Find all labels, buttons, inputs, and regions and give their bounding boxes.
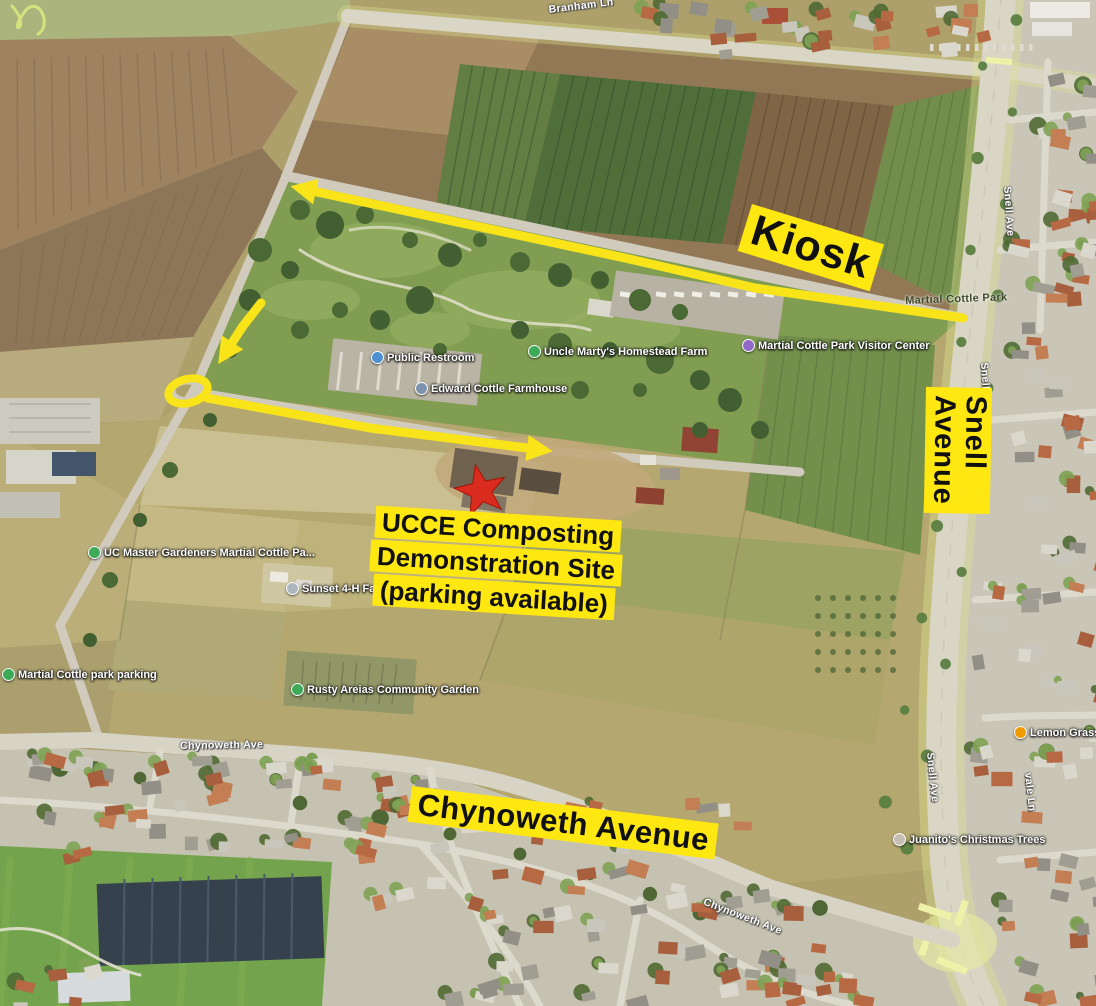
snell-avenue-text: Snell Avenue [924,387,992,514]
map-flyer: Martial Cottle ParkBranham LnSnell AveSn… [0,0,1096,1006]
flyer-labels-layer: Kiosk UCCE Composting Demonstration Site… [0,0,1096,1006]
chynoweth-avenue-label: Chynoweth Avenue [408,786,719,860]
kiosk-label: Kiosk [738,204,885,292]
snell-avenue-label: Snell Avenue [924,387,992,514]
composting-site-label: UCCE Composting Demonstration Site (park… [353,504,639,623]
kiosk-label-text: Kiosk [738,204,885,292]
chynoweth-avenue-text: Chynoweth Avenue [408,786,719,860]
